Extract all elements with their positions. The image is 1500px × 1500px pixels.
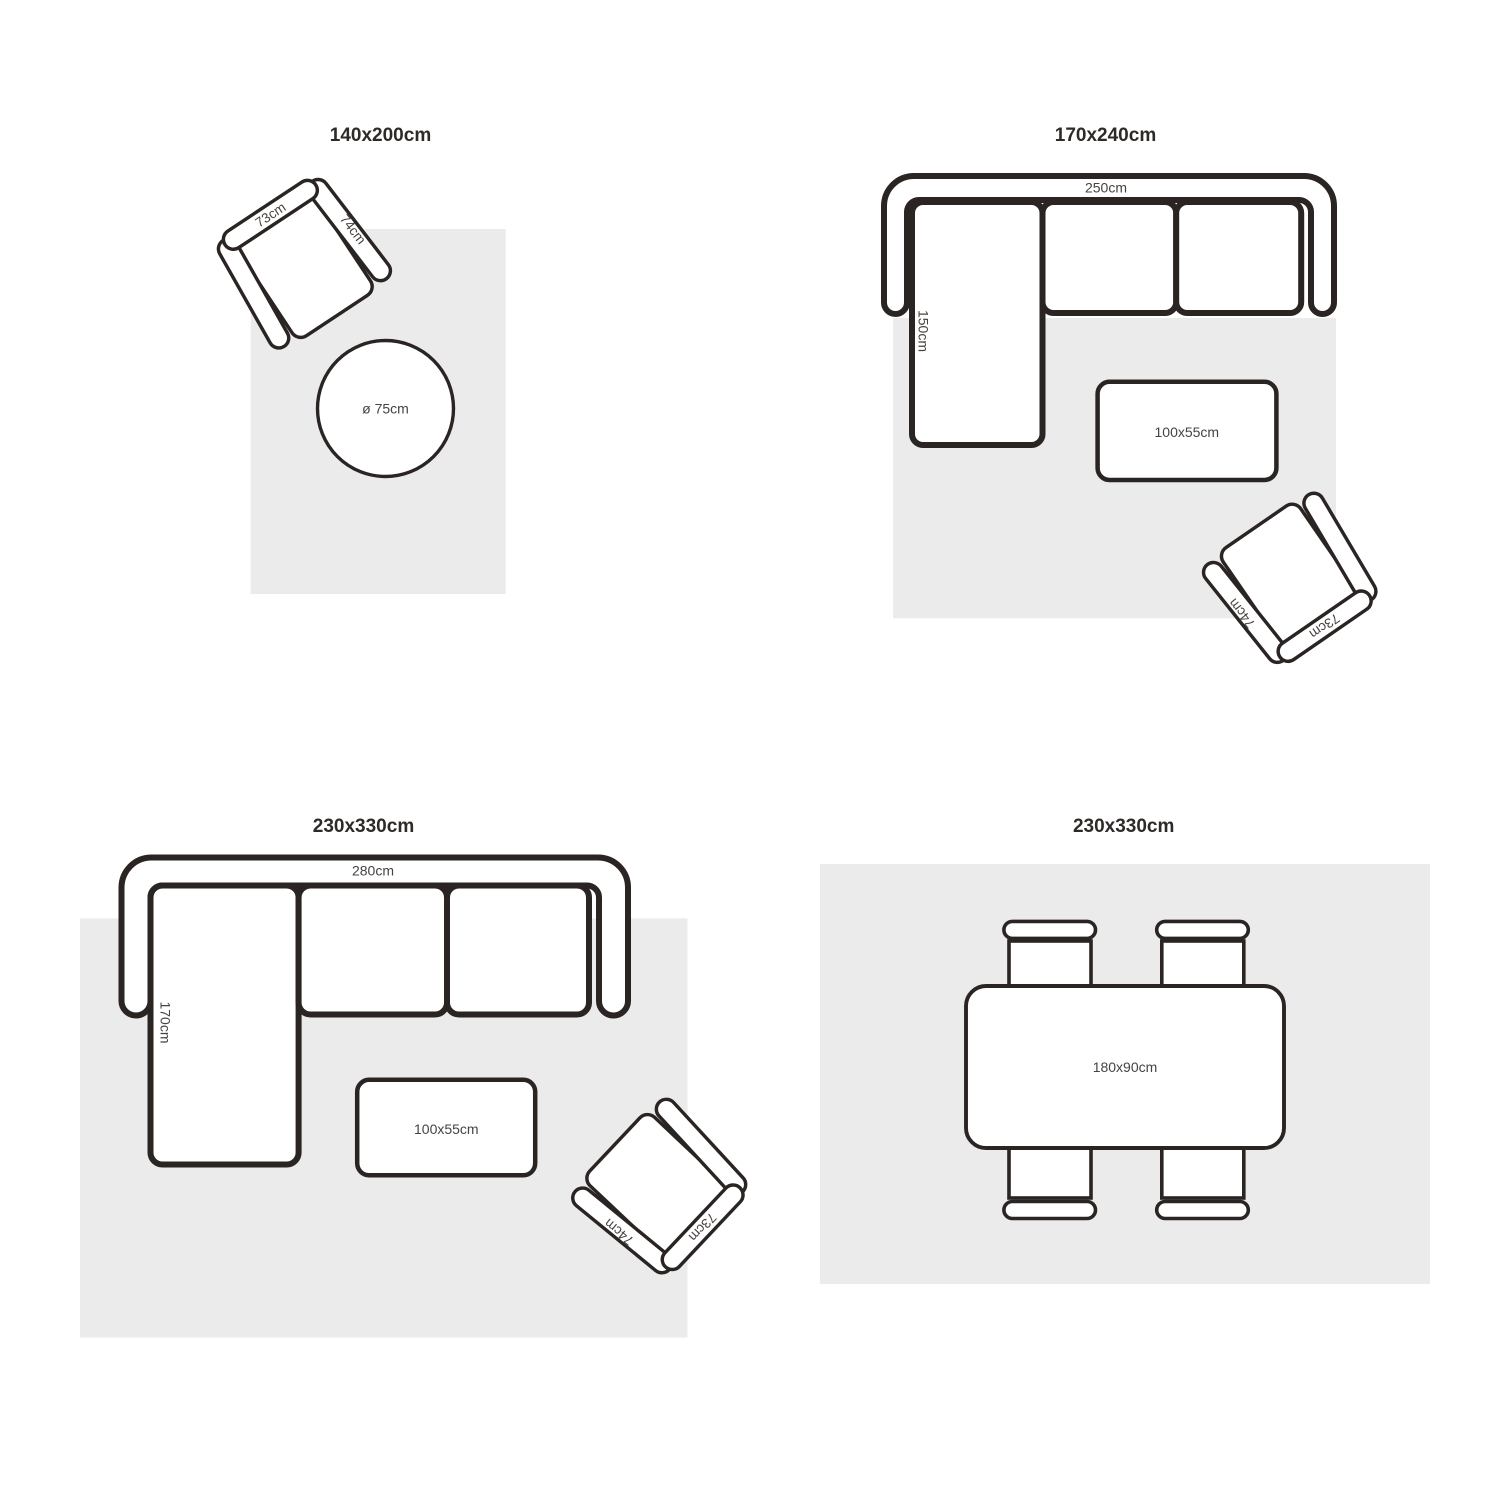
svg-text:230x330cm: 230x330cm — [1073, 816, 1174, 837]
svg-text:100x55cm: 100x55cm — [414, 1121, 479, 1137]
svg-text:100x55cm: 100x55cm — [1155, 424, 1220, 440]
svg-text:ø 75cm: ø 75cm — [362, 401, 409, 417]
svg-text:230x330cm: 230x330cm — [313, 816, 414, 837]
svg-text:250cm: 250cm — [1085, 179, 1127, 195]
svg-text:180x90cm: 180x90cm — [1093, 1059, 1158, 1075]
svg-text:280cm: 280cm — [352, 862, 394, 878]
svg-text:170cm: 170cm — [158, 1001, 174, 1043]
svg-text:140x200cm: 140x200cm — [330, 125, 431, 146]
svg-text:170x240cm: 170x240cm — [1055, 125, 1156, 146]
svg-text:150cm: 150cm — [915, 310, 931, 352]
